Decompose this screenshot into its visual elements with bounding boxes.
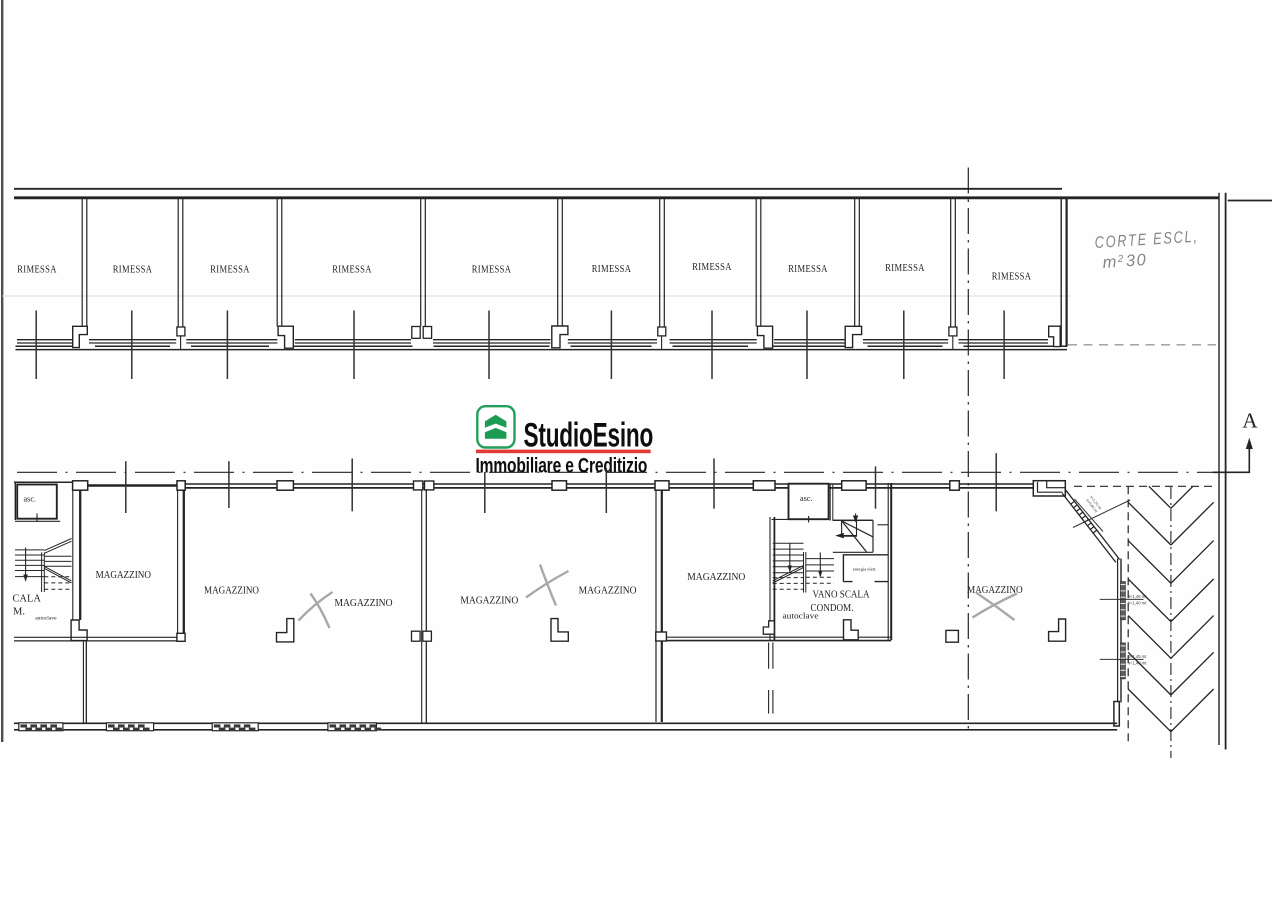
svg-text:autoclave: autoclave: [783, 611, 819, 621]
svg-text:MAGAZZINO: MAGAZZINO: [204, 586, 259, 597]
svg-text:M.: M.: [13, 607, 25, 618]
svg-text:Immobiliare e Creditizio: Immobiliare e Creditizio: [476, 453, 648, 477]
svg-text:RIMESSA: RIMESSA: [472, 265, 512, 276]
svg-text:RIMESSA: RIMESSA: [992, 272, 1032, 283]
svg-text:RIMESSA: RIMESSA: [17, 265, 57, 276]
svg-text:MAGAZZINO: MAGAZZINO: [579, 586, 637, 597]
svg-text:h=1,40 mt: h=1,40 mt: [1128, 601, 1148, 606]
svg-text:RIMESSA: RIMESSA: [692, 262, 732, 273]
svg-text:MAGAZZINO: MAGAZZINO: [335, 598, 393, 609]
svg-text:RIMESSA: RIMESSA: [788, 264, 828, 275]
svg-text:MAGAZZINO: MAGAZZINO: [687, 572, 745, 583]
svg-text:asc.: asc.: [24, 495, 37, 504]
svg-text:RIMESSA: RIMESSA: [210, 265, 250, 276]
svg-text:CALA: CALA: [13, 594, 42, 605]
svg-text:RIMESSA: RIMESSA: [885, 263, 925, 274]
svg-text:RIMESSA: RIMESSA: [113, 265, 153, 276]
svg-text:StudioEsino: StudioEsino: [524, 417, 654, 455]
svg-text:A: A: [1242, 409, 1258, 433]
svg-text:RIMESSA: RIMESSA: [592, 264, 632, 275]
svg-text:MAGAZZINO: MAGAZZINO: [96, 570, 151, 581]
svg-text:autoclave: autoclave: [35, 615, 57, 621]
svg-text:energia elett.: energia elett.: [853, 567, 877, 572]
svg-text:VANO SCALA: VANO SCALA: [813, 590, 871, 601]
svg-text:asc.: asc.: [800, 494, 813, 503]
svg-text:MAGAZZINO: MAGAZZINO: [460, 596, 518, 607]
svg-text:RIMESSA: RIMESSA: [332, 265, 372, 276]
